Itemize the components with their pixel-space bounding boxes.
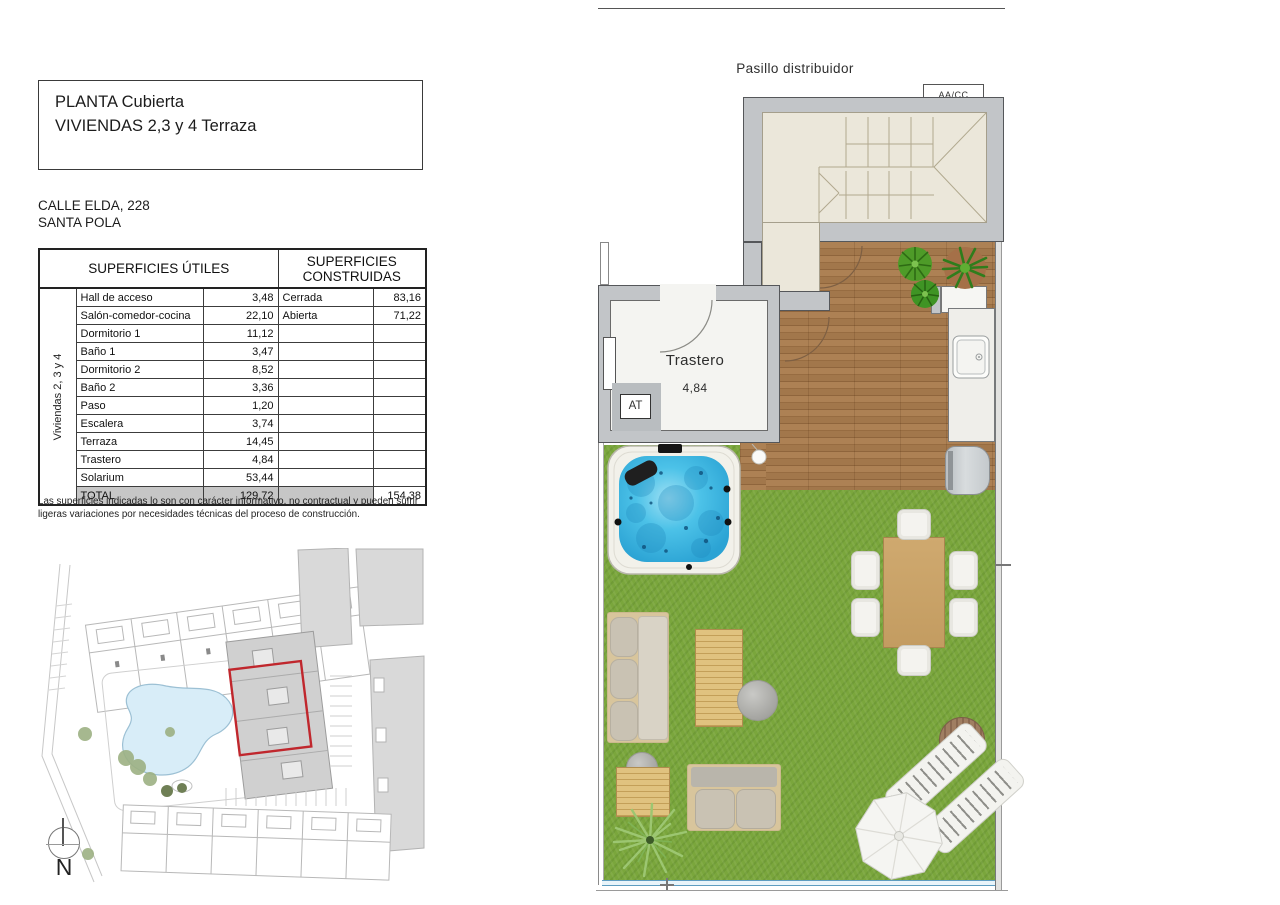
- built-area: [373, 343, 426, 361]
- room-area: 3,74: [203, 415, 278, 433]
- built-name: [278, 397, 373, 415]
- compass-needle: [62, 818, 64, 846]
- dining-chair: [851, 551, 880, 590]
- built-name: Abierta: [278, 307, 373, 325]
- dimension-tick: [666, 878, 668, 890]
- built-area: [373, 379, 426, 397]
- group-label: Viviendas 2, 3 y 4: [52, 353, 64, 440]
- surfaces-table: SUPERFICIES ÚTILES SUPERFICIES CONSTRUID…: [38, 248, 427, 506]
- room-name: Dormitorio 1: [76, 325, 203, 343]
- left-balustrade: [598, 443, 604, 885]
- north-label: N: [50, 854, 78, 881]
- door-arcs: [598, 95, 1008, 395]
- dining-chair: [949, 598, 978, 637]
- table-row: Salón-comedor-cocina22,10Abierta71,22: [39, 307, 426, 325]
- sofa-cushion: [610, 617, 638, 657]
- disclaimer-note: Las superficies indicadas lo son con car…: [38, 496, 440, 521]
- built-area: [373, 469, 426, 487]
- table-row: Paso1,20: [39, 397, 426, 415]
- sofa-cushion: [610, 659, 638, 699]
- table-row: Viviendas 2, 3 y 4 Hall de acceso3,48Cer…: [39, 288, 426, 307]
- sofa-three-seat: [607, 612, 669, 743]
- sofa-two-seat: [687, 764, 781, 831]
- site-plan: [30, 548, 425, 893]
- table-row: Baño 13,47: [39, 343, 426, 361]
- address-line1: CALLE ELDA, 228: [38, 197, 150, 214]
- room-area: 3,48: [203, 288, 278, 307]
- built-area: [373, 397, 426, 415]
- parasol: [853, 790, 945, 882]
- room-name: Hall de acceso: [76, 288, 203, 307]
- fern-plant: [608, 798, 692, 882]
- room-area: 3,47: [203, 343, 278, 361]
- room-name: Baño 1: [76, 343, 203, 361]
- jacuzzi: [606, 443, 744, 577]
- title-box: PLANTA Cubierta VIVIENDAS 2,3 y 4 Terraz…: [38, 80, 423, 170]
- room-area: 8,52: [203, 361, 278, 379]
- header-utiles: SUPERFICIES ÚTILES: [39, 249, 278, 288]
- stone-stool: [737, 680, 778, 721]
- built-area: [373, 415, 426, 433]
- built-name: [278, 343, 373, 361]
- built-area: 83,16: [373, 288, 426, 307]
- built-name: [278, 361, 373, 379]
- built-name: [278, 379, 373, 397]
- sofa-seat: [638, 616, 668, 740]
- pendant-icon: [748, 444, 768, 466]
- room-name: Baño 2: [76, 379, 203, 397]
- plan-sheet: PLANTA Cubierta VIVIENDAS 2,3 y 4 Terraz…: [0, 0, 1280, 905]
- at-label: AT: [629, 400, 643, 412]
- address-line2: SANTA POLA: [38, 214, 150, 231]
- room-area: 53,44: [203, 469, 278, 487]
- sofa-cushion: [736, 789, 776, 829]
- table-row: Baño 23,36: [39, 379, 426, 397]
- dimension-tick: [995, 564, 1011, 566]
- sofa-cushion: [610, 701, 638, 741]
- sofa-cushion: [695, 789, 735, 829]
- room-area: 1,20: [203, 397, 278, 415]
- built-area: 71,22: [373, 307, 426, 325]
- table-row: Solarium53,44: [39, 469, 426, 487]
- dining-chair: [897, 509, 931, 540]
- sofa-backrest: [691, 767, 777, 787]
- top-rule: [598, 8, 1005, 9]
- built-name: [278, 451, 373, 469]
- room-name: Salón-comedor-cocina: [76, 307, 203, 325]
- table-row: Escalera3,74: [39, 415, 426, 433]
- built-area: [373, 361, 426, 379]
- dining-chair: [897, 645, 931, 676]
- built-name: [278, 469, 373, 487]
- table-row: Dormitorio 111,12: [39, 325, 426, 343]
- room-name: Paso: [76, 397, 203, 415]
- room-name: Dormitorio 2: [76, 361, 203, 379]
- built-area: [373, 325, 426, 343]
- corridor-label: Pasillo distribuidor: [695, 61, 895, 76]
- plan-title-line2: VIVIENDAS 2,3 y 4 Terraza: [55, 114, 422, 138]
- group-label-cell: Viviendas 2, 3 y 4: [39, 288, 76, 505]
- plan-title-line1: PLANTA Cubierta: [55, 90, 422, 114]
- built-name: Cerrada: [278, 288, 373, 307]
- dining-chair: [949, 551, 978, 590]
- built-name: [278, 415, 373, 433]
- address-block: CALLE ELDA, 228 SANTA POLA: [38, 197, 150, 231]
- at-box: AT: [620, 394, 651, 419]
- shower-unit: [945, 446, 990, 495]
- header-construidas: SUPERFICIES CONSTRUIDAS: [278, 249, 426, 288]
- bottom-rule: [596, 890, 1008, 891]
- room-area: 22,10: [203, 307, 278, 325]
- room-name: Trastero: [76, 451, 203, 469]
- shower-panel: [948, 451, 953, 490]
- room-area: 14,45: [203, 433, 278, 451]
- built-name: [278, 433, 373, 451]
- built-area: [373, 451, 426, 469]
- built-area: [373, 433, 426, 451]
- table-row: Terraza14,45: [39, 433, 426, 451]
- room-name: Solarium: [76, 469, 203, 487]
- built-name: [278, 325, 373, 343]
- dining-table: [883, 537, 945, 648]
- room-area: 4,84: [203, 451, 278, 469]
- coffee-table: [695, 629, 743, 727]
- table-row: Dormitorio 28,52: [39, 361, 426, 379]
- room-area: 11,12: [203, 325, 278, 343]
- dining-chair: [851, 598, 880, 637]
- table-header-row: SUPERFICIES ÚTILES SUPERFICIES CONSTRUID…: [39, 249, 426, 288]
- room-name: Terraza: [76, 433, 203, 451]
- table-row: Trastero4,84: [39, 451, 426, 469]
- compass-chord: [46, 844, 80, 845]
- room-area: 3,36: [203, 379, 278, 397]
- room-name: Escalera: [76, 415, 203, 433]
